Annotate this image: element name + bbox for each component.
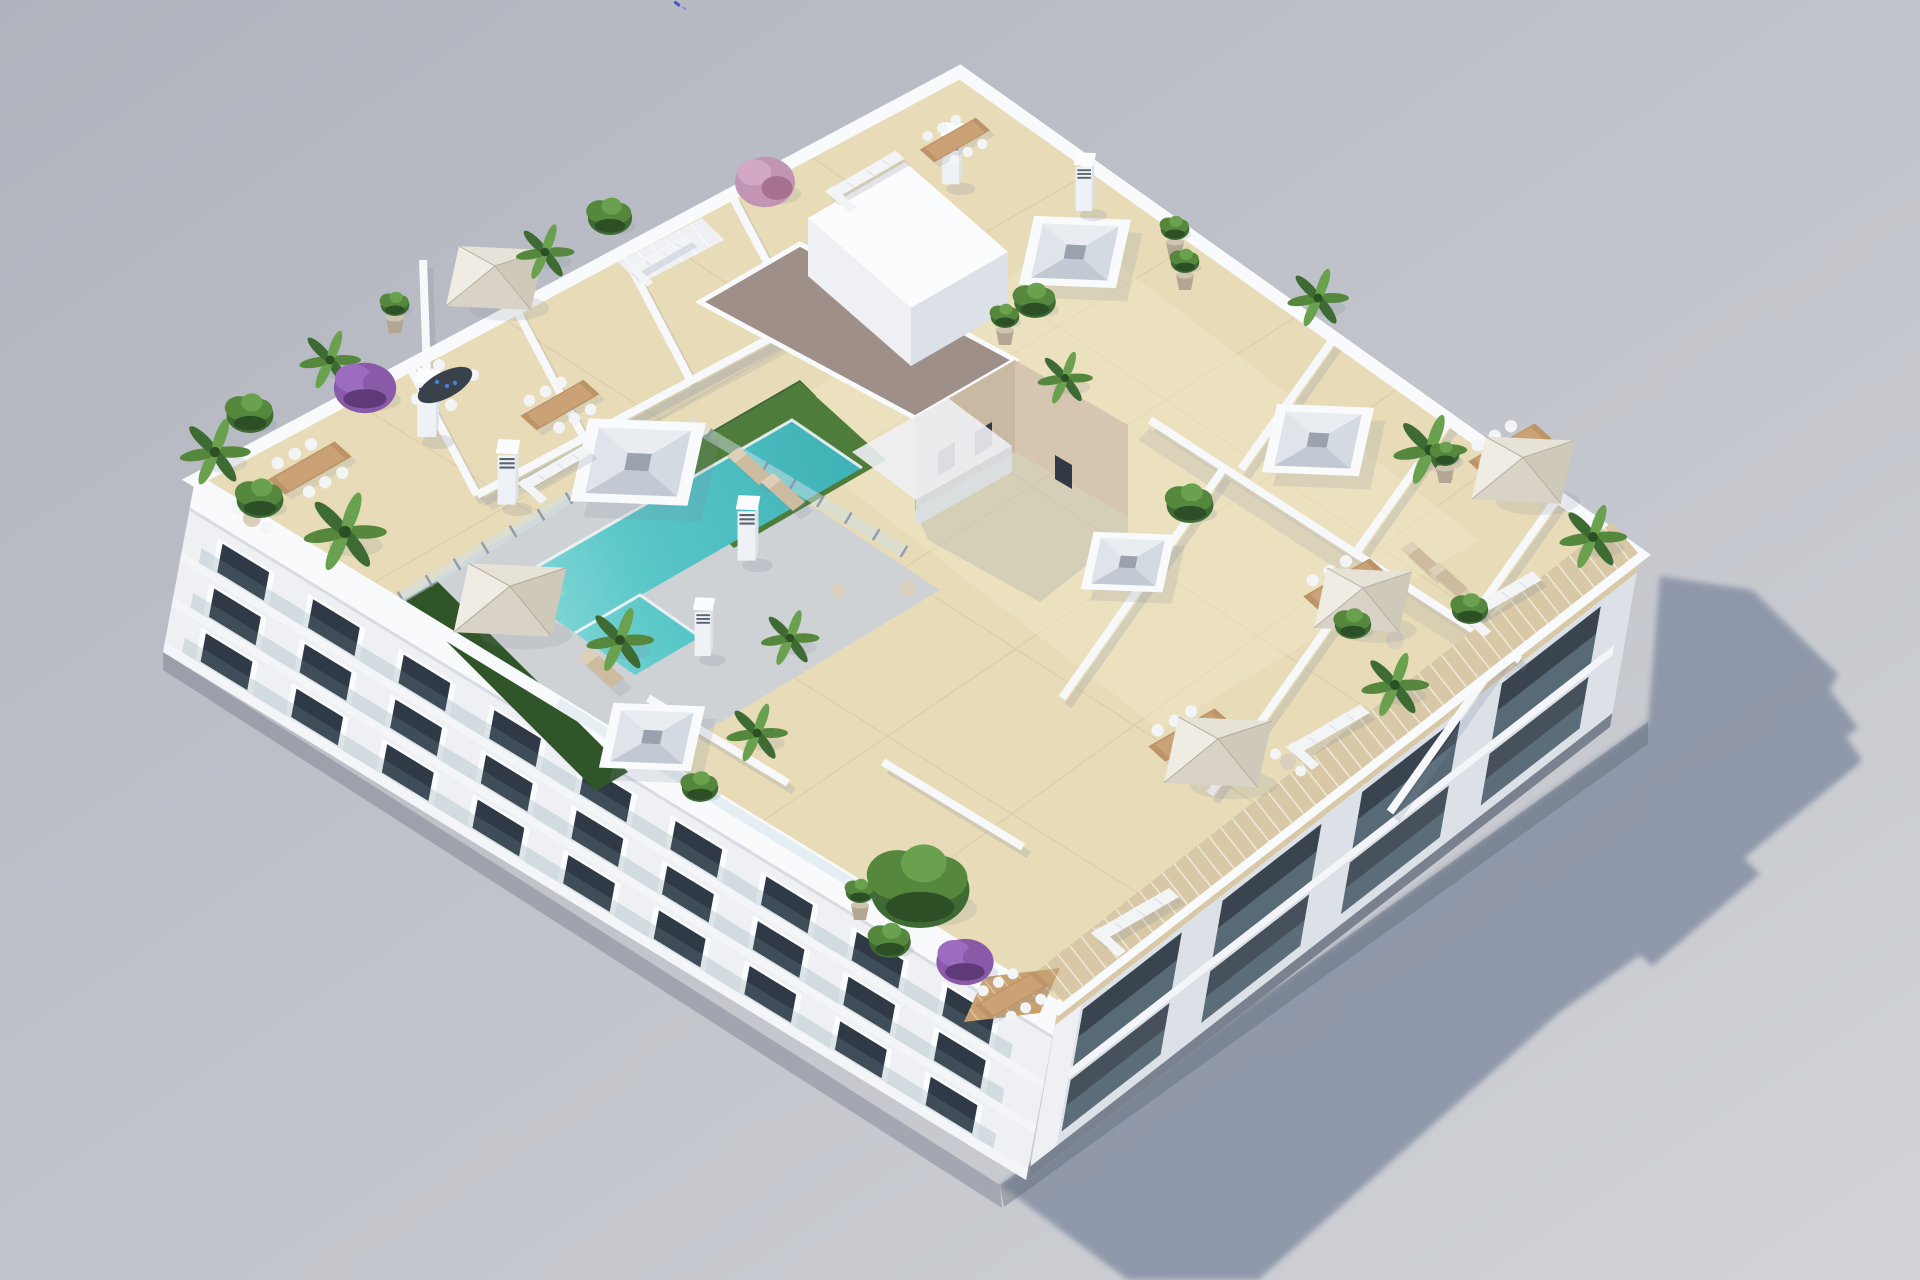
side-pouf xyxy=(831,583,845,597)
skylight-well xyxy=(1262,404,1386,490)
skylight-well xyxy=(599,703,716,784)
skylight-well xyxy=(1081,532,1185,604)
aerial-building-render xyxy=(0,0,1920,1280)
side-pouf xyxy=(900,580,916,596)
render-viewport xyxy=(0,0,1920,1280)
skylight-well xyxy=(570,418,720,522)
